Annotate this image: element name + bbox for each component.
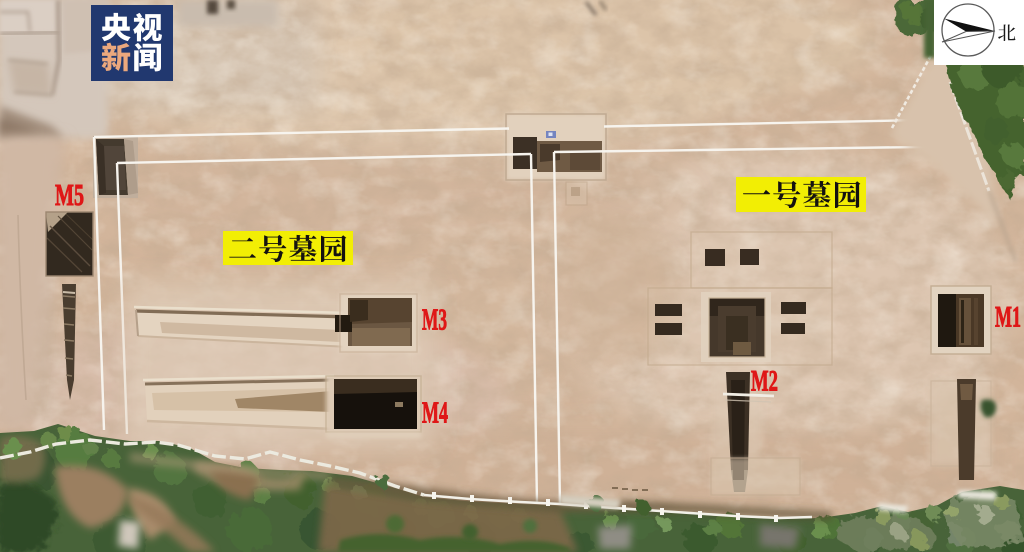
- svg-text:M3: M3: [422, 302, 447, 337]
- svg-text:M1: M1: [995, 301, 1021, 334]
- svg-text:M5: M5: [55, 177, 84, 212]
- svg-text:M4: M4: [422, 395, 448, 430]
- svg-text:M2: M2: [751, 365, 778, 398]
